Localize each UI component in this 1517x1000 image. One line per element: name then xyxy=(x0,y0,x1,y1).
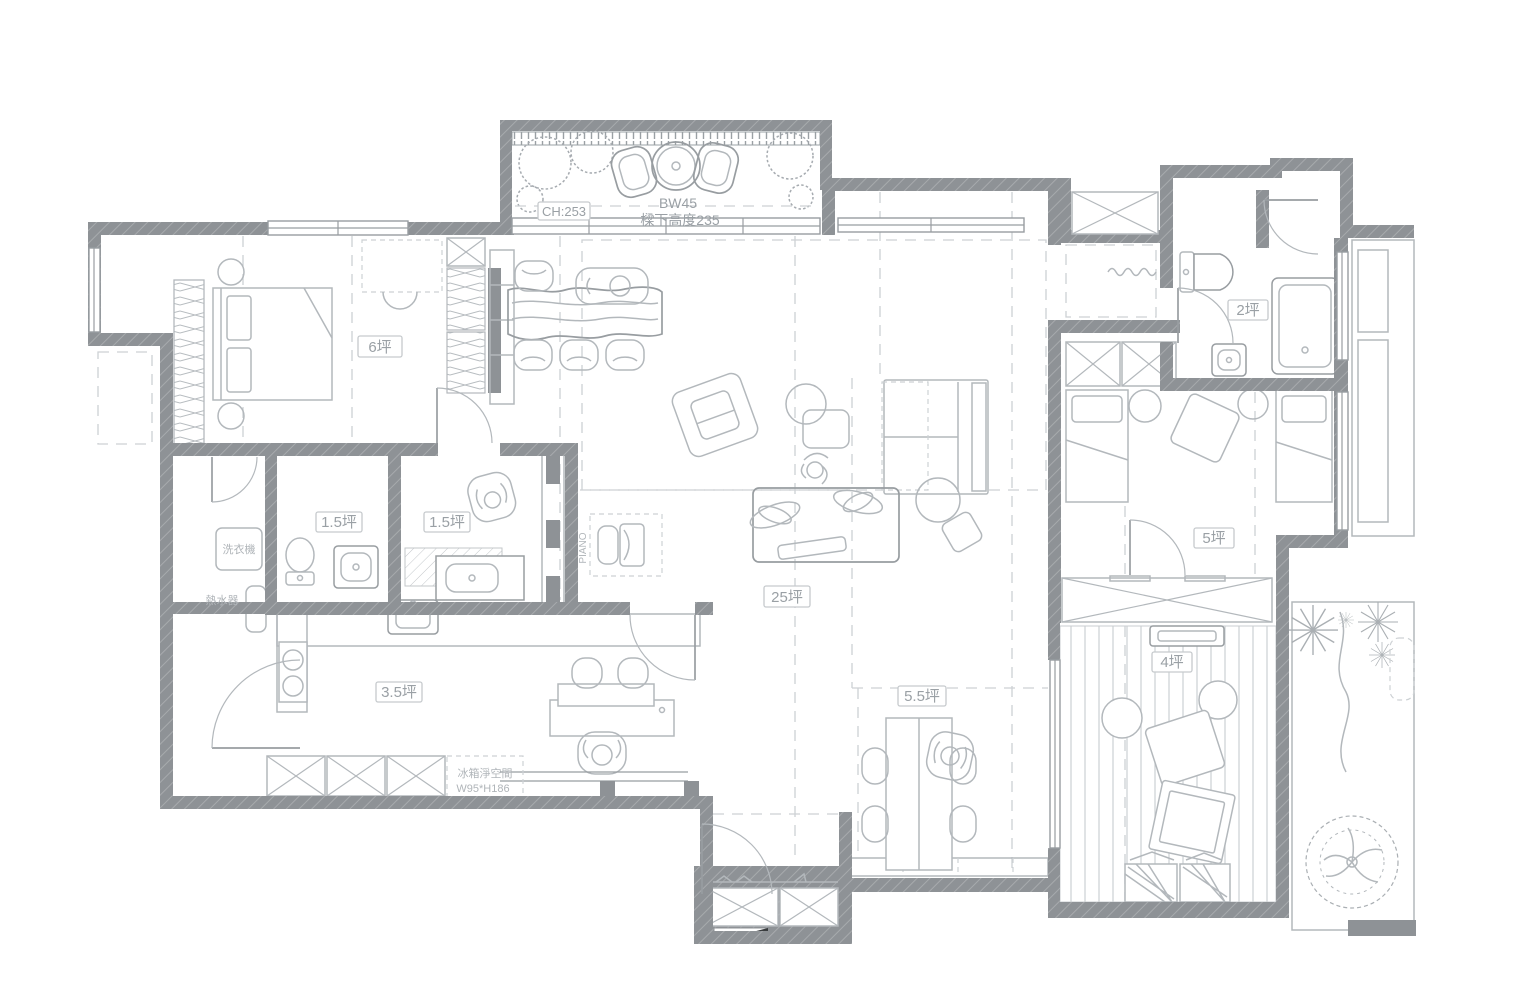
dining-chair-icon xyxy=(515,261,553,291)
washer-hookup-icon xyxy=(1108,269,1156,276)
dining-table-area xyxy=(490,250,662,404)
nightstand-icon xyxy=(218,403,244,429)
nightstand-icon xyxy=(218,259,244,285)
shoe-cabinet-icon xyxy=(706,874,838,926)
closet-icon xyxy=(447,238,501,393)
toilet-icon xyxy=(1180,252,1233,292)
garden xyxy=(1288,602,1416,936)
door-storage-nook xyxy=(1264,200,1318,254)
label-beam-code: BW45 xyxy=(659,195,697,211)
bed-icon xyxy=(213,288,332,400)
side-table-icon xyxy=(786,384,826,424)
door-master xyxy=(437,388,492,443)
label-beam-height: 樑下高度235 xyxy=(640,212,720,228)
hall-closets xyxy=(1066,342,1176,386)
ac-ledge xyxy=(1352,240,1414,536)
live-edge-table-icon xyxy=(508,287,662,340)
wardrobe-icon xyxy=(174,280,204,452)
floor-cushion-icon xyxy=(1169,392,1241,464)
label-bath-left-area: 1.5坪 xyxy=(321,514,357,531)
label-kitchen-area: 3.5坪 xyxy=(381,684,417,701)
bed-icon xyxy=(1066,390,1128,502)
base-cabinet-icon xyxy=(267,756,445,796)
balcony-table-icon xyxy=(652,142,700,190)
door-bedroom-right xyxy=(1130,520,1185,575)
window xyxy=(89,248,100,332)
wardrobe-icon xyxy=(1062,576,1272,622)
balcony-chair-icon xyxy=(691,140,741,196)
label-master-area: 6坪 xyxy=(368,339,391,356)
garden-tree-icon xyxy=(1306,816,1398,908)
label-dining-area: 5.5坪 xyxy=(904,688,940,705)
shaft xyxy=(1072,192,1158,234)
office-chair-icon xyxy=(578,732,626,774)
floor-plan-svg: CH:253 BW45 樑下高度235 6坪 2坪 1.5坪 1.5坪 洗衣機 … xyxy=(0,0,1517,1000)
label-bath-mid-area: 1.5坪 xyxy=(429,514,465,531)
dining-chair-icon xyxy=(560,340,598,370)
stool-icon xyxy=(1129,390,1161,422)
bathroom-mid xyxy=(405,469,524,600)
bedroom-right xyxy=(1062,389,1332,622)
dining-room xyxy=(862,718,976,870)
chair-person-icon xyxy=(465,469,519,525)
label-fridge-2: W95*H186 xyxy=(456,783,509,795)
window xyxy=(1337,392,1348,530)
stool-icon xyxy=(1238,389,1268,419)
cushion-icon xyxy=(1102,698,1142,738)
desk-icon xyxy=(362,240,442,309)
dining-chair-icon xyxy=(514,340,552,370)
piano-icon xyxy=(598,524,644,566)
label-ceiling-height: CH:253 xyxy=(542,204,586,219)
window xyxy=(1337,252,1348,360)
vanity-icon xyxy=(436,556,524,600)
dining-chair-icon xyxy=(606,340,644,370)
lounge-chair-icon xyxy=(576,268,648,304)
bathtub-icon xyxy=(1272,278,1338,374)
label-living-area: 25坪 xyxy=(771,589,803,606)
label-fridge-1: 冰箱淨空間 xyxy=(458,766,513,780)
window xyxy=(1050,660,1060,848)
label-piano: PIANO xyxy=(578,532,589,563)
low-table-icon xyxy=(1149,780,1236,864)
bed-icon xyxy=(1276,390,1332,502)
window xyxy=(838,218,1024,232)
sink-icon xyxy=(1212,344,1246,376)
study-area xyxy=(500,658,699,796)
sofa-icon xyxy=(882,380,988,494)
side-table-icon xyxy=(803,410,849,448)
label-water-heater: 熱水器 xyxy=(206,594,239,607)
label-bath2-area: 2坪 xyxy=(1236,302,1259,319)
person-sketch xyxy=(801,453,828,484)
piano-area xyxy=(542,450,662,610)
coffee-table-icon xyxy=(745,480,899,562)
floor-plan-stage: CH:253 BW45 樑下高度235 6坪 2坪 1.5坪 1.5坪 洗衣機 … xyxy=(0,0,1517,1000)
console-icon xyxy=(1150,626,1224,646)
counter-icon xyxy=(277,614,700,646)
pouf-icon xyxy=(940,510,984,554)
label-tatami-area: 4坪 xyxy=(1160,654,1183,671)
sink-icon xyxy=(334,546,378,588)
label-bedroom-right-area: 5坪 xyxy=(1202,530,1225,547)
bathroom-left xyxy=(286,538,378,588)
door-utility xyxy=(212,457,257,502)
toilet-icon xyxy=(286,538,314,585)
label-washing-machine: 洗衣機 xyxy=(223,542,256,556)
living-room xyxy=(670,371,988,562)
stove-icon xyxy=(279,642,307,702)
door-bath-top-right xyxy=(1178,288,1233,343)
master-bedroom xyxy=(174,238,501,452)
window xyxy=(268,221,408,235)
armchair-icon xyxy=(670,371,761,460)
door-study xyxy=(630,615,695,680)
